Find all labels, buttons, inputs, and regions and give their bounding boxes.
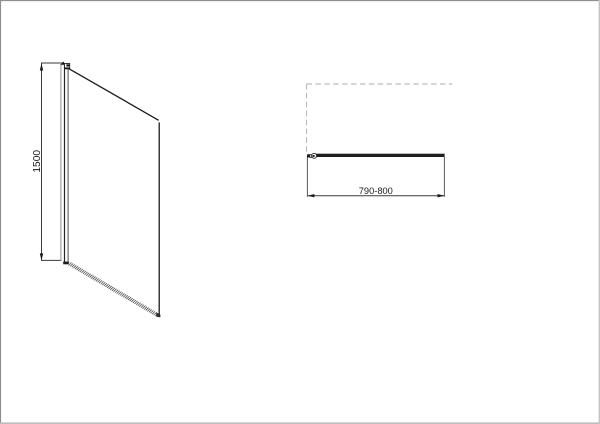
svg-text:1500: 1500 (32, 150, 43, 173)
svg-text:790-800: 790-800 (359, 186, 393, 196)
